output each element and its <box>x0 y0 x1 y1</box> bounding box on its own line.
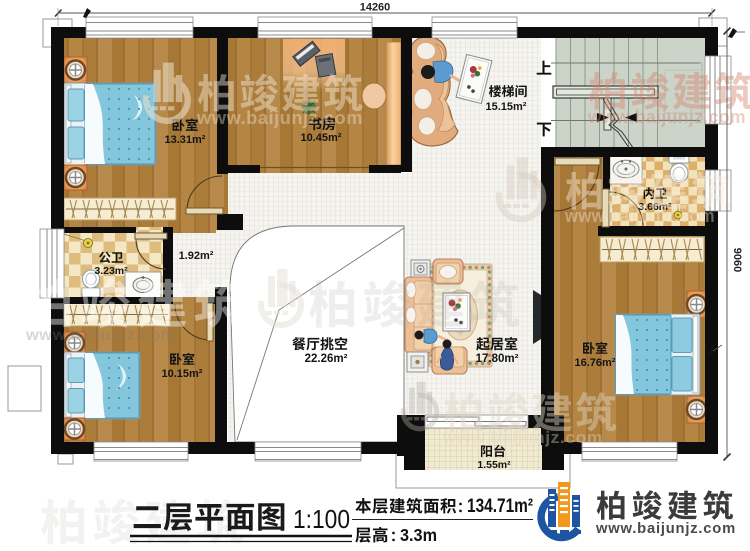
svg-text:www.baijunjz.com: www.baijunjz.com <box>595 520 736 537</box>
svg-text:22.26m²: 22.26m² <box>305 353 348 365</box>
svg-text:www.baijunjz.com: www.baijunjz.com <box>196 107 363 128</box>
svg-text:10.15m²: 10.15m² <box>162 368 203 380</box>
svg-text:www.baijunjz.com: www.baijunjz.com <box>442 428 603 447</box>
svg-text:14260: 14260 <box>360 2 391 14</box>
svg-text:www.baijunjz.com: www.baijunjz.com <box>587 106 746 127</box>
svg-text:www.baijunjz.com: www.baijunjz.com <box>25 327 176 344</box>
svg-text:1.55m²: 1.55m² <box>477 459 511 471</box>
svg-text:134.71m²: 134.71m² <box>467 496 533 517</box>
svg-text:3.3m: 3.3m <box>400 525 437 545</box>
svg-text:1.92m²: 1.92m² <box>179 250 214 262</box>
svg-text:1:100: 1:100 <box>293 504 350 534</box>
svg-text:3.23m²: 3.23m² <box>94 265 128 277</box>
svg-text:www.baijunjz.com: www.baijunjz.com <box>564 205 715 226</box>
svg-text:13.31m²: 13.31m² <box>165 134 206 146</box>
svg-text:10.45m²: 10.45m² <box>301 132 342 144</box>
svg-text:15.15m²: 15.15m² <box>486 101 527 113</box>
svg-text:16.76m²: 16.76m² <box>575 357 616 369</box>
svg-text:17.80m²: 17.80m² <box>476 353 519 365</box>
svg-text:9060: 9060 <box>731 248 743 272</box>
